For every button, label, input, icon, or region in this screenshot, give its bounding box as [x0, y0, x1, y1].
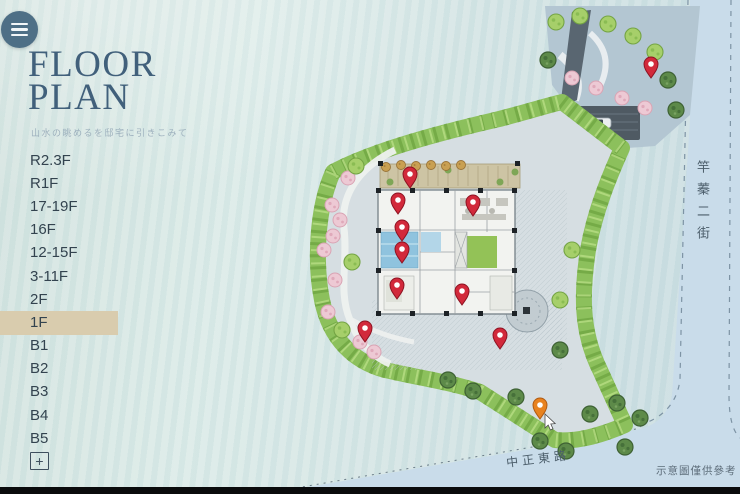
map-disclaimer: 示意圖僅供參考	[656, 463, 740, 478]
street-label-right: 竿蓁二街	[693, 160, 712, 248]
floor-plan-screen: FLOOR PLAN 山水の眺めるを邸宅に引きこみて R2.3FR1F17-19…	[0, 0, 740, 494]
site-plan-map[interactable]: 竿蓁二街 中正東路 示意圖僅供參考	[0, 0, 740, 494]
site-plan-svg	[0, 0, 740, 494]
letterbox-bar	[0, 487, 740, 494]
